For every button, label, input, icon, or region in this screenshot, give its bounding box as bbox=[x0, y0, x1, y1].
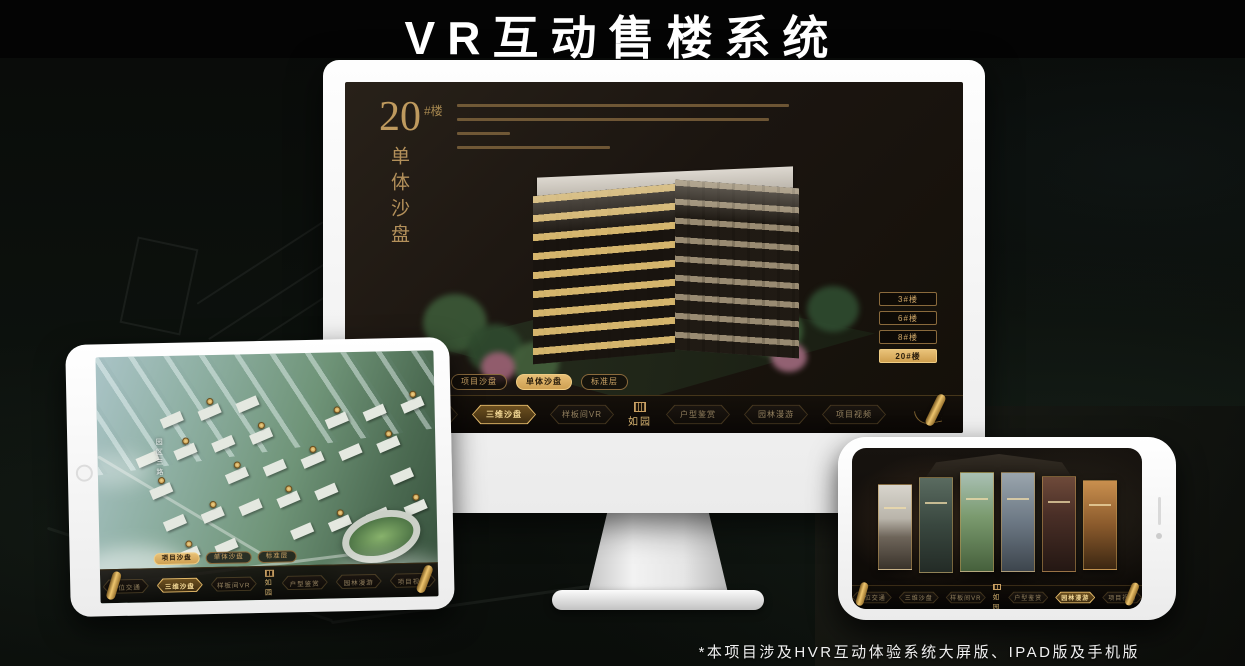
floor-button[interactable]: 20#楼 bbox=[879, 349, 937, 363]
sub-tab[interactable]: 单体沙盘 bbox=[206, 551, 252, 564]
aerial-building bbox=[376, 435, 400, 453]
aerial-building bbox=[163, 514, 187, 532]
poster-canvas: VR互动售楼系统 *本项目涉及HVR互动体验系统大屏版、IPAD版及手机版 20… bbox=[0, 0, 1245, 666]
nav-right-group: 户型鉴赏 园林漫游 项目视频 bbox=[282, 572, 436, 591]
camera-dot bbox=[1156, 533, 1162, 539]
aerial-building bbox=[225, 467, 249, 485]
aerial-building bbox=[301, 451, 325, 469]
aerial-building bbox=[263, 459, 287, 477]
phone-screen: 区位交通 三维沙盘 样板间VR 如园 bbox=[852, 448, 1142, 609]
phone-bottom-nav: 区位交通 三维沙盘 样板间VR 如园 bbox=[852, 585, 1142, 609]
gallery-panel[interactable] bbox=[1083, 480, 1117, 570]
sub-tab[interactable]: 项目沙盘 bbox=[154, 552, 200, 565]
aerial-building bbox=[390, 467, 414, 485]
monitor-stand-base bbox=[552, 590, 764, 610]
sub-tab[interactable]: 标准层 bbox=[581, 374, 628, 390]
gallery-panel[interactable] bbox=[960, 472, 994, 572]
speaker-slit bbox=[1158, 497, 1161, 525]
brand-logo: 如园 bbox=[628, 402, 652, 428]
nav-item[interactable]: 样板间VR bbox=[211, 576, 257, 593]
phone-device: 区位交通 三维沙盘 样板间VR 如园 bbox=[838, 437, 1176, 620]
nav-item[interactable]: 三维沙盘 bbox=[157, 577, 203, 594]
aerial-building bbox=[338, 443, 362, 461]
monitor-stand-neck bbox=[588, 511, 728, 593]
sub-tab[interactable]: 单体沙盘 bbox=[516, 374, 572, 390]
building-subtitle-vertical: 单体沙盘 bbox=[385, 146, 412, 264]
nav-item[interactable]: 三维沙盘 bbox=[899, 591, 939, 604]
tree bbox=[807, 286, 859, 332]
nav-item[interactable]: 三维沙盘 bbox=[472, 404, 536, 426]
tablet-bottom-nav: 区位交通 三维沙盘 样板间VR 如园 bbox=[100, 562, 439, 603]
description-text-line bbox=[457, 104, 789, 107]
sub-tab[interactable]: 标准层 bbox=[258, 550, 297, 563]
sub-tab[interactable]: 项目沙盘 bbox=[451, 374, 507, 390]
tablet-device: 园区三路 项目沙盘单体沙盘标准层 区位交通 三维沙盘 bbox=[65, 337, 455, 617]
description-text-line bbox=[457, 132, 510, 135]
aerial-building bbox=[276, 490, 300, 508]
background-map-line bbox=[197, 221, 324, 304]
aerial-building bbox=[314, 483, 338, 501]
description-paragraph bbox=[457, 104, 789, 160]
building-number: 20 bbox=[379, 96, 421, 138]
floor-button[interactable]: 8#楼 bbox=[879, 330, 937, 344]
brand-logo: 如园 bbox=[264, 569, 274, 597]
gallery-panel[interactable] bbox=[1042, 476, 1076, 572]
gallery-panel[interactable] bbox=[1001, 472, 1035, 572]
gallery-panel[interactable] bbox=[919, 477, 953, 573]
brand-logo: 如园 bbox=[993, 584, 1002, 609]
building-marker[interactable] bbox=[285, 485, 292, 492]
nav-item[interactable]: 园林漫游 bbox=[1055, 591, 1095, 604]
home-button[interactable] bbox=[76, 465, 93, 482]
aerial-building bbox=[290, 522, 314, 540]
nav-item[interactable]: 项目视频 bbox=[822, 404, 886, 426]
nav-left-group: 区位交通 三维沙盘 样板间VR bbox=[103, 576, 257, 595]
description-text-line bbox=[457, 146, 610, 149]
background-picture-frame bbox=[120, 237, 199, 336]
nav-item[interactable]: 园林漫游 bbox=[336, 573, 382, 590]
nav-right-group: 户型鉴赏 园林漫游 项目视频 bbox=[666, 404, 886, 426]
nav-item[interactable]: 样板间VR bbox=[550, 404, 614, 426]
page-title: VR互动售楼系统 bbox=[0, 2, 1245, 68]
building-facade-lit bbox=[533, 184, 675, 364]
building-facade-side bbox=[675, 180, 799, 359]
building-title: 20 #楼 单体沙盘 bbox=[379, 96, 443, 264]
nav-item[interactable]: 户型鉴赏 bbox=[666, 404, 730, 426]
gallery-panel-group bbox=[878, 472, 1117, 573]
seal-icon bbox=[264, 569, 273, 576]
nav-left-group: 区位交通 三维沙盘 样板间VR bbox=[852, 591, 986, 604]
seal-icon bbox=[993, 584, 1001, 590]
aerial-building bbox=[239, 498, 263, 516]
scroll-icon[interactable] bbox=[913, 391, 955, 431]
road-label: 园区三路 bbox=[153, 438, 164, 478]
building-number-suffix: #楼 bbox=[424, 102, 443, 119]
nav-right-group: 户型鉴赏 园林漫游 项目视频 bbox=[1008, 591, 1142, 604]
nav-item[interactable]: 园林漫游 bbox=[744, 404, 808, 426]
footnote: *本项目涉及HVR互动体验系统大屏版、IPAD版及手机版 bbox=[699, 641, 1140, 662]
gallery-panel[interactable] bbox=[878, 484, 912, 570]
description-text-line bbox=[457, 118, 769, 121]
apartment-building bbox=[533, 170, 799, 368]
brand-logo-text: 如园 bbox=[265, 577, 274, 597]
nav-item[interactable]: 样板间VR bbox=[946, 591, 986, 604]
floor-button[interactable]: 6#楼 bbox=[879, 311, 937, 325]
nav-item[interactable]: 户型鉴赏 bbox=[1008, 591, 1048, 604]
brand-logo-text: 如园 bbox=[993, 591, 1002, 609]
floor-button-group: 3#楼6#楼8#楼20#楼 bbox=[879, 292, 937, 363]
building-marker[interactable] bbox=[234, 461, 241, 468]
nav-item[interactable]: 户型鉴赏 bbox=[282, 574, 328, 591]
tablet-screen: 园区三路 项目沙盘单体沙盘标准层 区位交通 三维沙盘 bbox=[95, 350, 438, 603]
building-marker[interactable] bbox=[258, 422, 265, 429]
brand-logo-text: 如园 bbox=[628, 413, 652, 428]
building-render bbox=[415, 166, 889, 433]
floor-button[interactable]: 3#楼 bbox=[879, 292, 937, 306]
seal-icon bbox=[634, 402, 646, 412]
aerial-building bbox=[201, 506, 225, 524]
building-marker[interactable] bbox=[309, 446, 316, 453]
sub-tab-group: 项目沙盘单体沙盘标准层 bbox=[451, 374, 628, 390]
